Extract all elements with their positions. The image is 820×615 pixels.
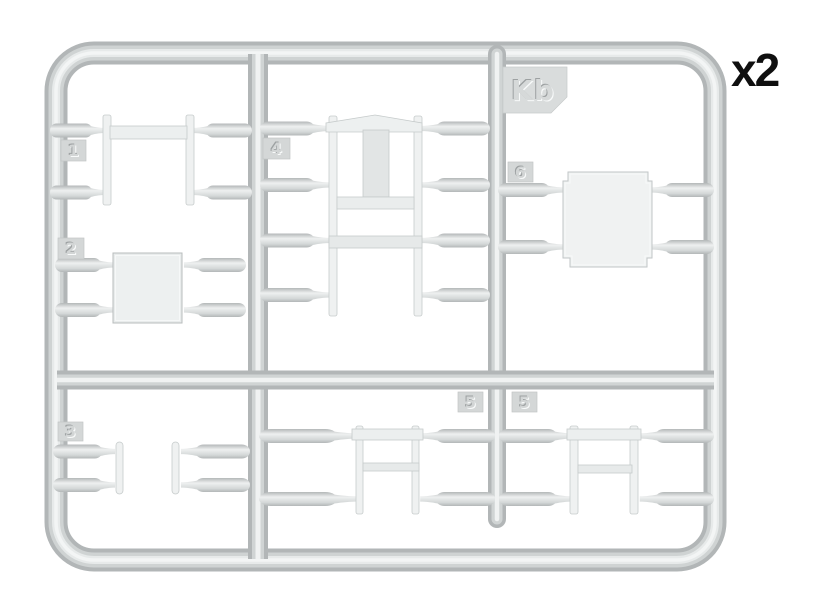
gate-pin: [181, 445, 250, 459]
gate-pin: [53, 478, 115, 492]
gate-pin: [422, 122, 490, 136]
gate-pin: [422, 234, 490, 248]
gate-pin: [55, 258, 113, 272]
part-4-chair-frame: [326, 115, 422, 316]
part-number-tag-4: [263, 138, 290, 159]
part-5-right-h-frame: [567, 426, 641, 514]
sprue-code-tag: [503, 67, 567, 113]
gate-pin: [184, 303, 246, 317]
sprue-diagram-page: 1 2 3 4 5 5 6 Kb x2: [0, 0, 820, 615]
part-number-tag-5-right: [512, 392, 537, 412]
part-5-left-h-frame: [352, 426, 423, 514]
gate-pin: [50, 124, 103, 138]
gate-pin: [498, 240, 563, 254]
part-6-stepped-plate: [563, 172, 652, 267]
part-2-square-plate: [113, 253, 182, 323]
gate-pin: [652, 240, 714, 254]
gate-pin: [422, 178, 490, 192]
gate-pin: [652, 183, 714, 197]
gate-pin: [640, 429, 714, 443]
gate-pin: [181, 478, 250, 492]
gate-pin: [194, 186, 252, 200]
gate-pin: [498, 183, 563, 197]
part-number-tag-2: [58, 238, 84, 259]
part-3-strips: [116, 442, 179, 494]
part-number-tag-6: [508, 162, 533, 182]
gate-pin: [420, 492, 495, 506]
gate-pin: [184, 258, 246, 272]
gate-pin: [259, 429, 358, 443]
quantity-label: x2: [731, 43, 778, 97]
gate-pin: [55, 303, 113, 317]
part-number-tag-5-left: [458, 392, 483, 412]
part-number-tag-1: [61, 140, 86, 161]
sprue-drawing: [0, 0, 820, 615]
gate-pin: [53, 445, 115, 459]
gate-pin: [499, 429, 572, 443]
gate-pin: [420, 429, 495, 443]
gate-pin: [499, 492, 572, 506]
gate-pin: [259, 492, 358, 506]
gate-pin: [260, 122, 329, 136]
gate-pin: [422, 288, 490, 302]
gate-pin: [640, 492, 714, 506]
gate-pin: [50, 186, 103, 200]
gate-pin: [194, 124, 252, 138]
part-number-tag-3: [58, 422, 83, 441]
gate-pin: [260, 234, 329, 248]
gate-pin: [260, 288, 329, 302]
part-1-ladder-frame: [103, 115, 194, 205]
gate-pin: [260, 178, 329, 192]
